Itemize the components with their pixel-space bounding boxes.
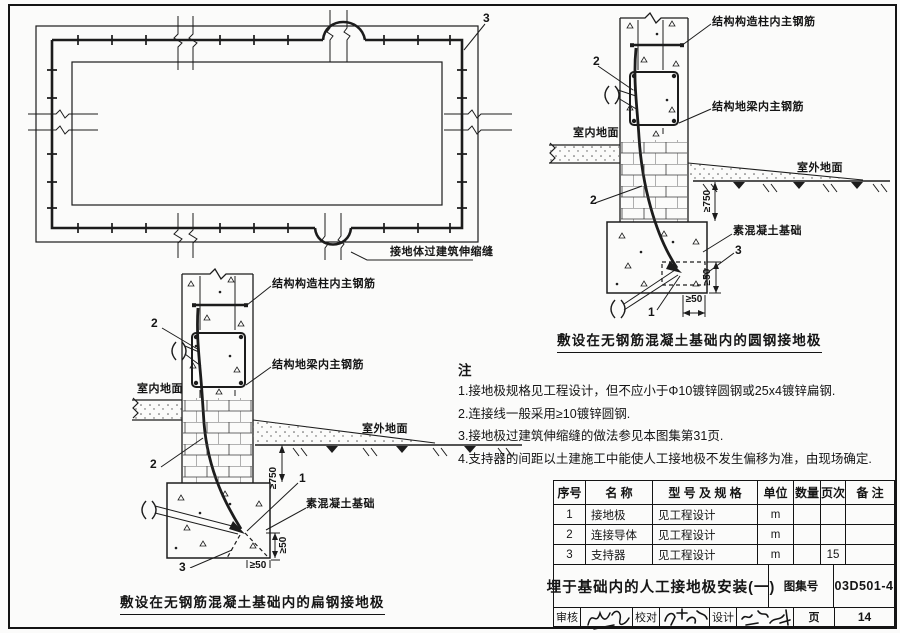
- flat-steel-dashed-end: [227, 533, 267, 558]
- flat-dim-cover-h: ≥50: [250, 561, 267, 571]
- flat-dim-depth: ≥750: [269, 467, 279, 489]
- flat-indoor-ground-label: 室内地面: [137, 384, 183, 395]
- flat-footing-label: 素混凝土基础: [306, 499, 375, 510]
- page-number: 14: [835, 608, 894, 626]
- round-dim-cover-h: ≥50: [686, 295, 703, 305]
- callout-3-leader: [464, 24, 485, 50]
- header-seq: 序号: [554, 481, 586, 504]
- brick-wall: [183, 398, 252, 483]
- wall-break-lines: [28, 16, 512, 258]
- design-label: 设计: [710, 608, 737, 626]
- page-label: 页: [794, 608, 835, 626]
- round-callout-2-upper: 2: [593, 55, 600, 67]
- footing-speckles: [175, 491, 262, 549]
- column-rebar-lines: [200, 276, 235, 398]
- designer-signature: [738, 605, 793, 631]
- flat-callout-2-upper: 2: [151, 317, 158, 329]
- note-item-4: 4.支持器的间距以土建施工中能使人工接地极不发生偏移为准，由现场确定.: [458, 448, 895, 471]
- flat-outdoor-ground-label: 室外地面: [362, 424, 408, 435]
- table-row: 1 接地极 见工程设计 m: [554, 505, 894, 525]
- flat-dim-cover-v: ≥50: [279, 537, 289, 554]
- footing-outline: [167, 483, 270, 558]
- atlas-number-label: 图集号: [769, 565, 834, 607]
- clamp-symbol-lower: [611, 300, 625, 318]
- sheet-title: 埋于基础内的人工接地极安装(一): [554, 565, 769, 607]
- note-item-2: 2.连接线一般采用≥10镀锌圆钢.: [458, 403, 895, 426]
- plan-view-drawing: [20, 8, 530, 266]
- proof-label: 校对: [633, 608, 660, 626]
- plan-callout-3: 3: [483, 12, 490, 24]
- notes-section: 注 1.接地极规格见工程设计，但不应小于Φ10镀锌圆钢或25x4镀锌扁钢. 2.…: [458, 362, 895, 470]
- materials-table: 序号 名 称 型 号 及 规 格 单位 数量 页次 备 注 1 接地极 见工程设…: [553, 480, 895, 627]
- reviewer-signature: [582, 605, 632, 631]
- proofreader-signature: [661, 605, 709, 631]
- round-callout-1: 1: [648, 306, 655, 318]
- header-name: 名 称: [586, 481, 653, 504]
- flat-callout-3: 3: [179, 561, 186, 573]
- atlas-number: 03D501-4: [834, 565, 894, 607]
- flat-callout-2-lower: 2: [150, 458, 157, 470]
- round-callout-3: 3: [735, 244, 742, 256]
- conductor-hump-top: [323, 22, 365, 40]
- review-label: 审核: [554, 608, 581, 626]
- note-item-3: 3.接地极过建筑伸缩缝的做法参见本图集第31页.: [458, 425, 895, 448]
- note-item-1: 1.接地极规格见工程设计，但不应小于Φ10镀锌圆钢或25x4镀锌扁钢.: [458, 380, 895, 403]
- brick-wall: [621, 140, 687, 222]
- ground-conductor-loop: [52, 40, 462, 228]
- clamp-symbol-upper: [605, 86, 619, 104]
- footing-speckles: [616, 231, 699, 286]
- header-unit: 单位: [758, 481, 794, 504]
- expansion-joint-lines: [322, 10, 350, 260]
- table-row: 3 支持器 见工程设计 m 15: [554, 545, 894, 565]
- round-footing-label: 素混凝土基础: [733, 226, 802, 237]
- round-callout-2-lower: 2: [590, 194, 597, 206]
- wall-outer-outline: [36, 26, 478, 242]
- table-header-row: 序号 名 称 型 号 及 规 格 单位 数量 页次 备 注: [554, 481, 894, 505]
- round-dim-cover-v: ≥50: [703, 269, 713, 286]
- expansion-joint-label: 接地体过建筑伸缩缝: [390, 247, 494, 258]
- support-ticks: [47, 35, 467, 233]
- earth-marks: [703, 182, 887, 192]
- column-rebar-lines: [638, 20, 663, 136]
- clamp-symbol-upper: [172, 342, 186, 360]
- table-row: 2 连接导体 见工程设计 m: [554, 525, 894, 545]
- flat-callout-1: 1: [299, 472, 306, 484]
- clamp-symbol-lower: [142, 501, 156, 519]
- designer-signature-cell: [737, 608, 794, 626]
- signature-row: 审核 校对 设计: [554, 608, 894, 626]
- header-page: 页次: [821, 481, 846, 504]
- title-block-row: 埋于基础内的人工接地极安装(一) 图集号 03D501-4: [554, 565, 894, 608]
- round-beam-rebar-label: 结构地梁内主钢筋: [712, 102, 804, 113]
- round-outdoor-ground-label: 室外地面: [797, 163, 843, 174]
- round-indoor-ground-label: 室内地面: [573, 128, 619, 139]
- round-detail-caption: 敷设在无钢筋混凝土基础内的圆钢接地极: [557, 334, 822, 353]
- proofreader-signature-cell: [660, 608, 710, 626]
- header-spec: 型 号 及 规 格: [653, 481, 758, 504]
- flat-detail-caption: 敷设在无钢筋混凝土基础内的扁钢接地极: [120, 596, 385, 615]
- reviewer-signature-cell: [581, 608, 633, 626]
- wall-inner-outline: [72, 62, 442, 205]
- flat-column-rebar-label: 结构构造柱内主钢筋: [272, 279, 376, 290]
- round-column-rebar-label: 结构构造柱内主钢筋: [712, 17, 816, 28]
- drawing-sheet: 3 接地体过建筑伸缩缝: [0, 0, 900, 633]
- header-remark: 备 注: [846, 481, 894, 504]
- notes-title: 注: [458, 362, 895, 380]
- header-qty: 数量: [794, 481, 821, 504]
- round-dim-depth: ≥750: [703, 190, 713, 212]
- flat-beam-rebar-label: 结构地梁内主钢筋: [272, 360, 364, 371]
